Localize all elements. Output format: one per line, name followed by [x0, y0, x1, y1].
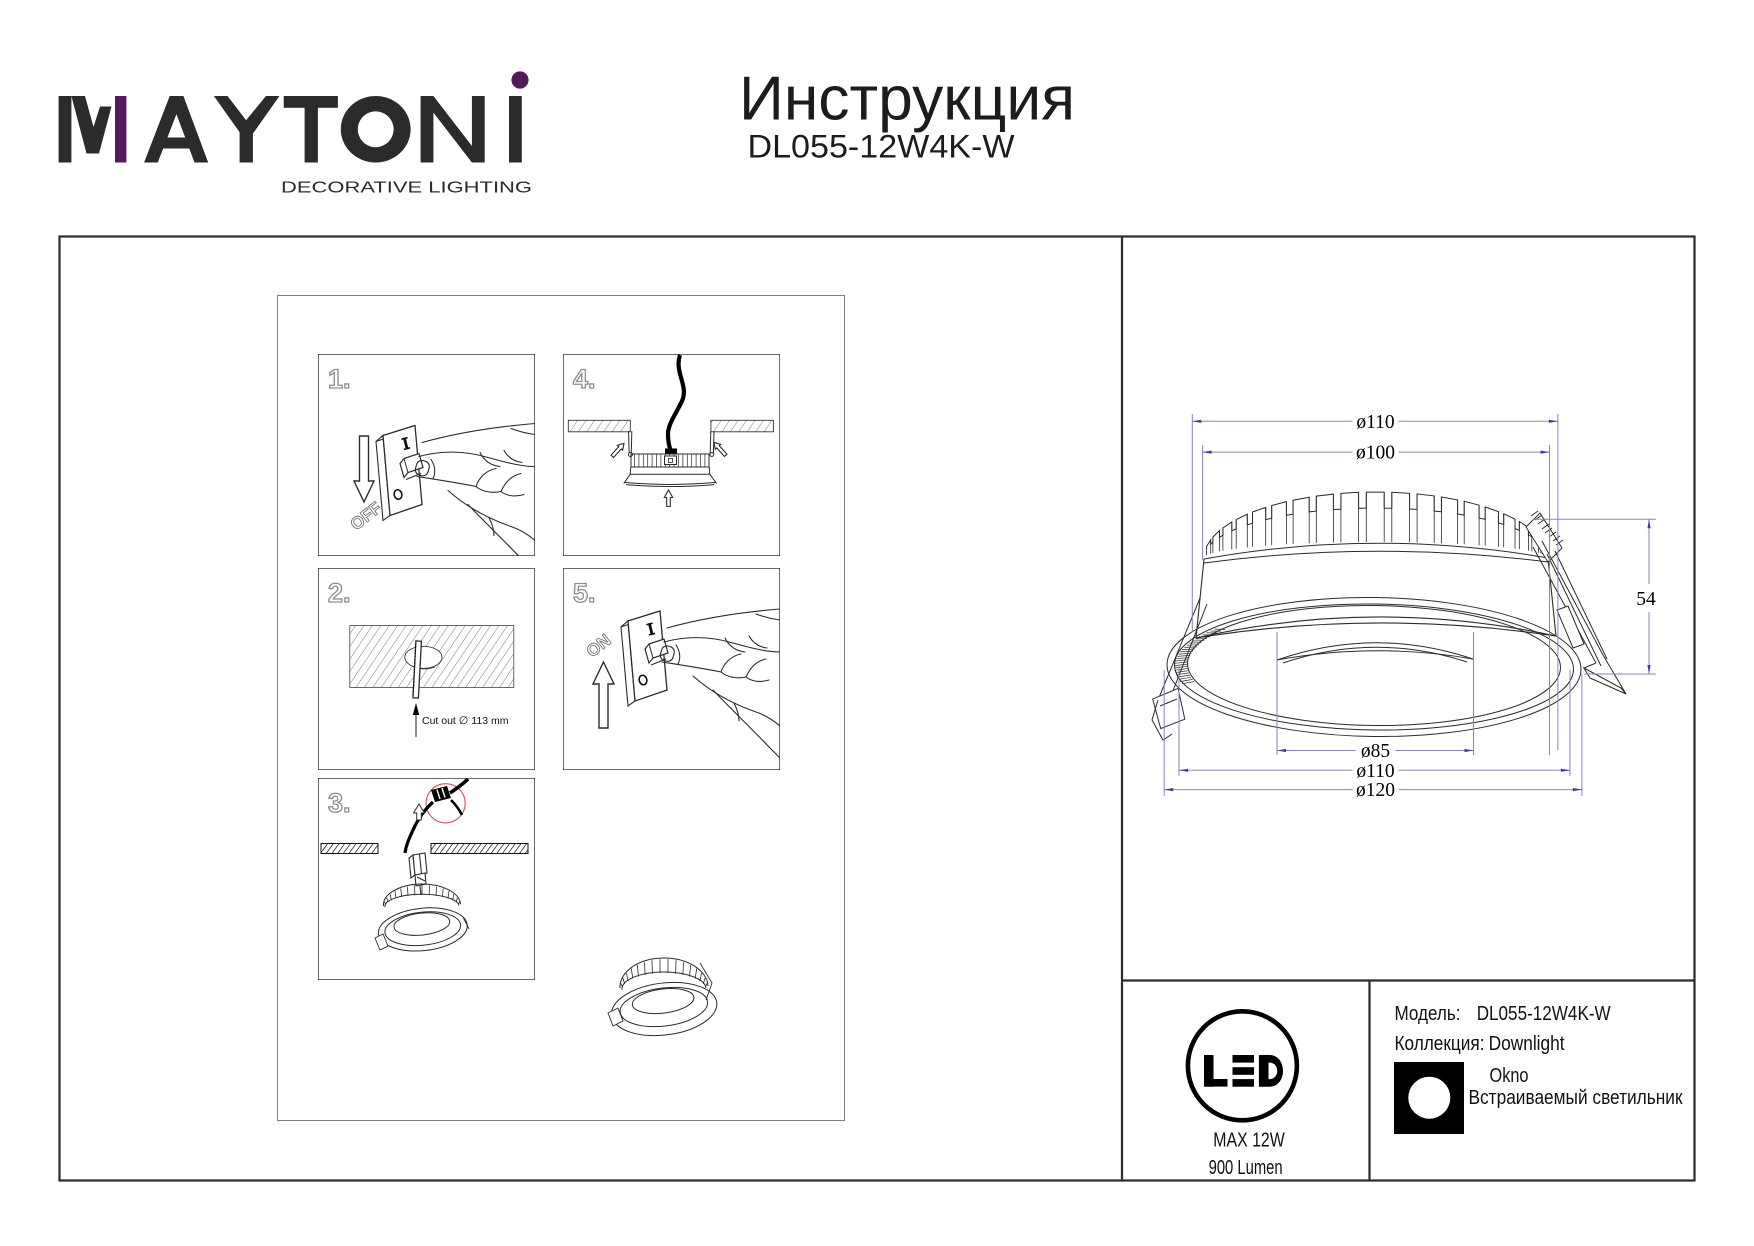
- svg-text:5.: 5.: [573, 578, 596, 608]
- svg-text:Модель:: Модель:: [1395, 1002, 1461, 1025]
- svg-text:Cut out ∅ 113 mm: Cut out ∅ 113 mm: [422, 715, 509, 727]
- svg-text:900 Lumen: 900 Lumen: [1209, 1157, 1283, 1179]
- svg-text:Downlight: Downlight: [1489, 1032, 1565, 1055]
- svg-text:3.: 3.: [328, 788, 351, 818]
- svg-text:ø110: ø110: [1356, 761, 1394, 782]
- svg-text:Коллекция:: Коллекция:: [1395, 1032, 1485, 1055]
- svg-text:DL055-12W4K-W: DL055-12W4K-W: [748, 129, 1016, 165]
- svg-text:ø100: ø100: [1356, 443, 1395, 464]
- svg-text:54: 54: [1636, 589, 1656, 610]
- svg-text:MAX 12W: MAX 12W: [1213, 1130, 1285, 1152]
- svg-text:1.: 1.: [328, 364, 351, 394]
- svg-text:ø120: ø120: [1356, 780, 1395, 801]
- svg-text:DL055-12W4K-W: DL055-12W4K-W: [1477, 1002, 1612, 1025]
- svg-text:Встраиваемый светильник: Встраиваемый светильник: [1469, 1086, 1684, 1109]
- svg-text:Okno: Okno: [1490, 1064, 1529, 1087]
- svg-text:Инструкция: Инструкция: [739, 64, 1075, 134]
- svg-text:ø110: ø110: [1356, 412, 1394, 433]
- svg-text:2.: 2.: [328, 578, 351, 608]
- svg-text:DECORATIVE LIGHTING: DECORATIVE LIGHTING: [281, 180, 532, 197]
- svg-text:4.: 4.: [573, 364, 596, 394]
- svg-text:ø85: ø85: [1361, 741, 1390, 762]
